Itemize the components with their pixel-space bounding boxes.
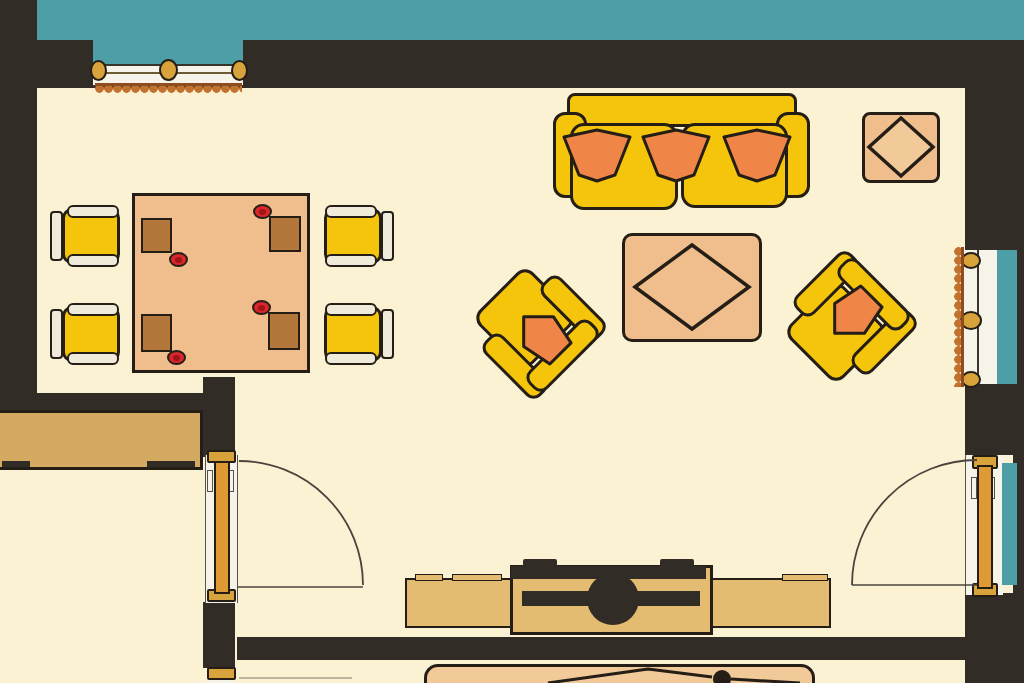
right-window-curtain-frill (950, 247, 964, 387)
chair-armrest-top (67, 303, 119, 316)
left-door-hinge-left (207, 470, 213, 492)
outside-area-top (0, 0, 1024, 40)
wall-left (0, 88, 37, 410)
top-window-knob-center (159, 59, 178, 81)
dining-chair-left-top (50, 205, 128, 267)
placemat-top-right (269, 216, 301, 252)
sofa-pillow-center (636, 127, 716, 185)
bottom-room-furniture (424, 664, 815, 683)
sofa-pillow-left (557, 127, 637, 185)
ottoman-side-table (862, 112, 940, 183)
sideboard-handle-right (147, 461, 195, 467)
wall-stub-above-left-door (203, 377, 235, 457)
right-door-panel (977, 465, 993, 589)
placemat-bottom-right (268, 312, 300, 350)
right-window-outside-view (997, 250, 1017, 384)
bottom-door-bracket (207, 667, 236, 680)
chair-armrest-bottom (67, 352, 119, 365)
ottoman-diamond-inlay (865, 115, 937, 180)
armchair-right (767, 243, 925, 401)
wall-partition-horizontal-left (0, 393, 235, 410)
wall-stub-below-left-door (203, 602, 235, 668)
top-window-knob-right (231, 60, 248, 81)
placemat-top-left (141, 218, 172, 253)
right-window-knob-bottom (961, 371, 981, 388)
wall-top-left-corner (0, 0, 37, 40)
right-window-knob-top (961, 252, 981, 269)
chair-backrest (381, 309, 394, 359)
chair-armrest-top (67, 205, 119, 218)
chair-armrest-top (325, 303, 377, 316)
plate-top-right (253, 204, 272, 219)
plate-bottom-right (252, 300, 271, 315)
plate-bottom-left (167, 350, 186, 365)
sofa-backrest (567, 93, 797, 127)
right-door-outside-view (1002, 463, 1017, 585)
coffee-table (622, 233, 762, 342)
wall-right-lower (965, 593, 1024, 683)
chair-backrest (50, 211, 63, 261)
chair-backrest (381, 211, 394, 261)
chair-armrest-bottom (325, 352, 377, 365)
armchair-left (456, 249, 614, 407)
sofa (545, 90, 817, 215)
coffee-table-diamond-inlay (625, 236, 759, 339)
left-door-panel (214, 461, 230, 594)
sideboard-handle-left (2, 461, 30, 467)
dining-chair-right-top (316, 205, 394, 267)
top-window-knob-left (90, 60, 107, 81)
wall-right-between (965, 382, 1024, 455)
chair-armrest-top (325, 205, 377, 218)
chair-armrest-bottom (67, 254, 119, 267)
dining-chair-right-bottom (316, 303, 394, 365)
placemat-bottom-left (141, 314, 172, 352)
tv-tab-right (660, 559, 694, 567)
wall-right-upper (965, 88, 1024, 252)
tv-round-base (587, 573, 639, 625)
chair-armrest-bottom (325, 254, 377, 267)
wall-bottom-partition (237, 637, 1024, 660)
tv-console-handle-right (782, 574, 828, 581)
sofa-pillow-right (717, 127, 797, 185)
tv-tab-left (523, 559, 557, 567)
tv-console-handle-left (415, 574, 443, 581)
chair-backrest (50, 309, 63, 359)
floor-plan-canvas (0, 0, 1024, 683)
plate-top-left (169, 252, 188, 267)
top-window-curtain-frill (95, 83, 242, 97)
tv-console-handle-mid (452, 574, 502, 581)
dining-chair-left-bottom (50, 303, 128, 365)
